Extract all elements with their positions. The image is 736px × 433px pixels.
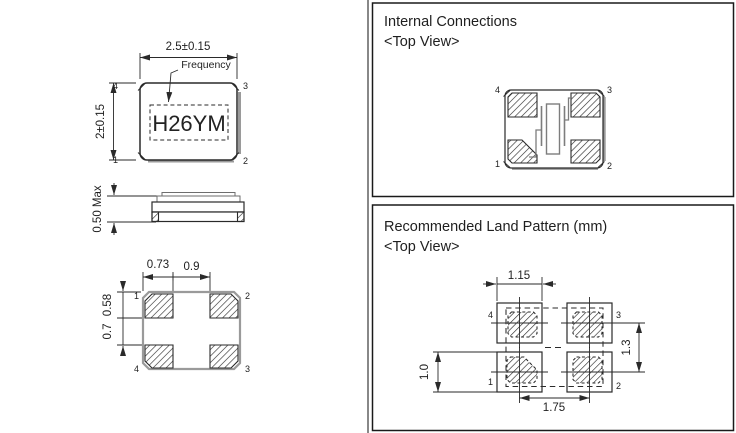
package-base-band xyxy=(152,212,244,222)
pin-label: 3 xyxy=(245,364,250,374)
drawing-svg: 2.5±0.15 2±0.15 H26YM Frequency xyxy=(0,0,736,433)
datasheet-drawing-page: 2.5±0.15 2±0.15 H26YM Frequency xyxy=(0,0,736,433)
internal-connections-drawing: 4 3 1 2 xyxy=(495,85,612,171)
land-pitch-horizontal-label: 1.75 xyxy=(543,402,565,414)
crystal-element xyxy=(547,104,560,154)
pin-label: 1 xyxy=(134,291,139,301)
marking-text: H26YM xyxy=(152,111,225,136)
side-view-drawing: 0.50 Max xyxy=(92,183,244,235)
device-pad-4 xyxy=(508,312,537,337)
row-gap-label: 0.7 xyxy=(102,324,114,340)
bottom-view-package xyxy=(143,292,240,369)
top-view-drawing: 2.5±0.15 2±0.15 H26YM Frequency xyxy=(95,41,248,166)
land-pattern-title: Recommended Land Pattern (mm) xyxy=(384,219,607,235)
top-view-height-dimension: 2±0.15 xyxy=(95,83,136,160)
side-view-height-label: 0.50 Max xyxy=(92,185,104,233)
bottom-pad-3 xyxy=(210,345,238,368)
top-view-width-label: 2.5±0.15 xyxy=(166,41,211,53)
device-pad-2 xyxy=(573,357,602,383)
internal-connections-panel: Internal Connections <Top View> xyxy=(384,14,612,171)
land-pattern-panel: Recommended Land Pattern (mm) <Top View>… xyxy=(384,219,645,414)
device-pads xyxy=(507,312,602,383)
land-pad-width-label: 1.15 xyxy=(508,270,530,282)
pad-width-label: 0.73 xyxy=(147,259,169,271)
pin-label: 4 xyxy=(495,85,500,95)
frequency-label: Frequency xyxy=(181,59,231,71)
internal-connections-title: Internal Connections xyxy=(384,14,517,30)
internal-pad-3 xyxy=(571,93,600,117)
pin-label: 3 xyxy=(243,81,248,91)
package-lid-top xyxy=(162,193,235,197)
bottom-pad-2 xyxy=(210,294,238,318)
pad-gap-label: 0.9 xyxy=(184,261,200,273)
pin-label: 1 xyxy=(495,159,500,169)
bottom-view-top-dimensions: 0.73 0.9 xyxy=(143,259,210,292)
land-pattern-subtitle: <Top View> xyxy=(384,239,460,255)
land-pad-height-dimension: 1.0 xyxy=(419,352,497,392)
pin-label: 1 xyxy=(488,377,493,387)
package-body-band xyxy=(152,202,244,212)
side-view-package-profile xyxy=(152,193,244,222)
pin-label: 4 xyxy=(488,310,493,320)
pin-label: 2 xyxy=(616,381,621,391)
pin-label: 3 xyxy=(616,310,621,320)
land-pattern-drawing: 1.15 xyxy=(419,270,645,414)
terminal-left xyxy=(152,212,159,222)
terminal-right xyxy=(238,212,245,222)
internal-pad-2 xyxy=(571,140,600,163)
pin-label: 2 xyxy=(243,156,248,166)
land-pad-width-dimension: 1.15 xyxy=(483,270,556,301)
pad-height-label: 0.58 xyxy=(102,294,114,316)
land-pad-height-label: 1.0 xyxy=(419,364,431,380)
internal-pad-4 xyxy=(508,93,537,117)
pin-label: 3 xyxy=(607,85,612,95)
package-lid xyxy=(157,196,240,202)
land-pitch-vertical-label: 1.3 xyxy=(621,340,633,356)
pin-label: 2 xyxy=(245,291,250,301)
bottom-pad-1 xyxy=(145,294,173,318)
land-pitch-vertical-dimension: 1.3 xyxy=(621,323,639,372)
top-view-height-label: 2±0.15 xyxy=(95,104,107,139)
bottom-view-drawing: 0.73 0.9 0.58 0.7 1 2 4 3 xyxy=(102,259,250,374)
pin-label: 4 xyxy=(134,364,139,374)
device-pad-3 xyxy=(573,312,602,337)
bottom-pad-4 xyxy=(145,345,173,368)
pin-label: 2 xyxy=(607,161,612,171)
pin-label: 1 xyxy=(113,155,118,165)
pin-label: 4 xyxy=(113,81,118,91)
land-pitch-horizontal-dimension: 1.75 xyxy=(520,398,590,414)
internal-connections-subtitle: <Top View> xyxy=(384,34,460,50)
top-view-package: H26YM xyxy=(138,83,240,162)
